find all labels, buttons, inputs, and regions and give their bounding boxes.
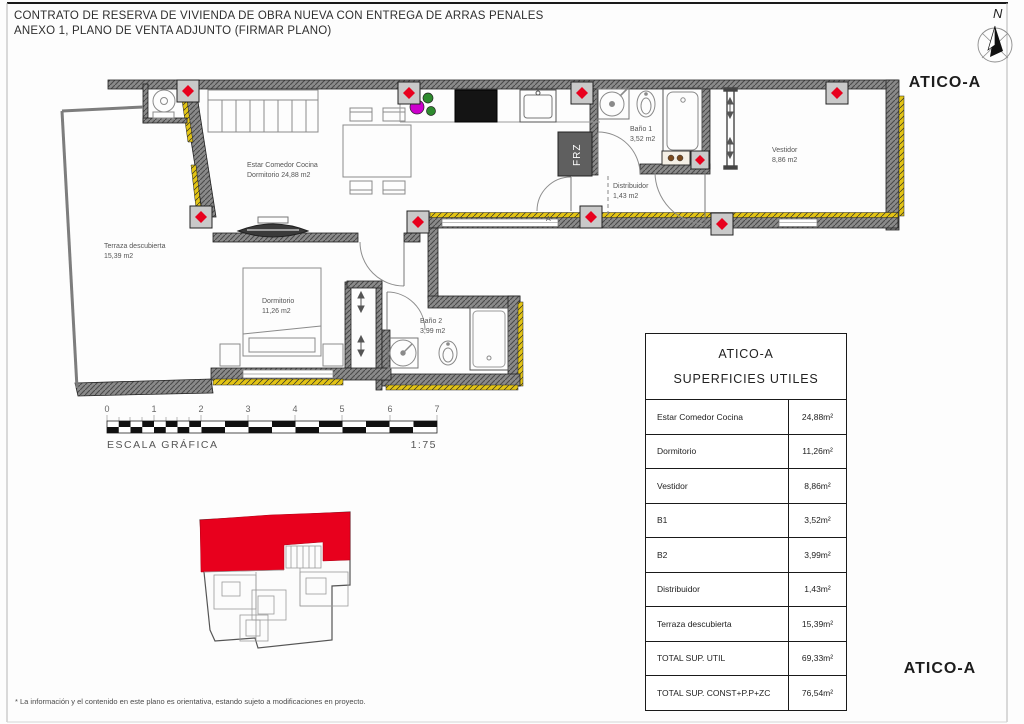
- estar-label: Estar Comedor Cocina: [247, 162, 318, 169]
- bano1-area: 3,52 m2: [630, 136, 655, 143]
- sofa-bench-icon: [208, 90, 318, 132]
- terraza-area: 15,39 m2: [104, 253, 133, 260]
- areas-table-subtitle: SUPERFICIES UTILES: [674, 372, 819, 386]
- bathtub-icon: [663, 88, 702, 154]
- key-plan: [200, 512, 350, 648]
- vestidor-area: 8,86 m2: [772, 157, 797, 164]
- bano2-area: 3,99 m2: [420, 328, 445, 335]
- table-row: TOTAL SUP. UTIL69,33m²: [646, 641, 846, 676]
- row-label: Distribuidor: [646, 573, 788, 607]
- row-label: Dormitorio: [646, 435, 788, 469]
- areas-table: ATICO-A SUPERFICIES UTILES Estar Comedor…: [645, 333, 847, 711]
- distribuidor-area: 1,43 m2: [613, 193, 638, 200]
- unit-name-top: ATICO-A: [880, 74, 1010, 92]
- row-label: Terraza descubierta: [646, 607, 788, 641]
- compass-north-label: N: [993, 6, 1003, 21]
- row-label: Estar Comedor Cocina: [646, 400, 788, 434]
- hob-burner-icon: [423, 93, 433, 103]
- pillar-marker: [826, 82, 848, 104]
- distribuidor-label: Distribuidor: [613, 183, 649, 190]
- row-label: TOTAL SUP. CONST+P.P+ZC: [646, 676, 788, 710]
- table-row: B13,52m²: [646, 503, 846, 538]
- row-value: 69,33m²: [788, 642, 846, 676]
- row-label: B2: [646, 538, 788, 572]
- row-value: 3,52m²: [788, 504, 846, 538]
- bano2-label: Baño 2: [420, 318, 442, 325]
- pillar-marker: [190, 206, 212, 228]
- row-value: 11,26m²: [788, 435, 846, 469]
- freezer-label: FRZ: [572, 144, 583, 166]
- nightstand-icon: [323, 344, 343, 366]
- scale-tick: 5: [339, 404, 344, 414]
- hob-burner-icon: [427, 107, 436, 116]
- scale-tick: 6: [387, 404, 392, 414]
- estar-area: Dormitorio 24,88 m2: [247, 172, 311, 179]
- scale-tick: 1: [151, 404, 156, 414]
- pillar-marker: [711, 213, 733, 235]
- kitchen-sink-icon: [520, 90, 556, 122]
- row-value: 15,39m²: [788, 607, 846, 641]
- bath2-fixtures: [388, 308, 508, 370]
- dormitorio-area: 11,26 m2: [262, 308, 291, 315]
- row-label: Vestidor: [646, 469, 788, 503]
- scale-tick: 3: [245, 404, 250, 414]
- table-row: Vestidor8,86m²: [646, 468, 846, 503]
- washing-machine-icon: [153, 90, 175, 118]
- bano1-label: Baño 1: [630, 126, 652, 133]
- terraza-label: Terraza descubierta: [104, 243, 166, 250]
- pillar-marker: [571, 82, 593, 104]
- pillar-marker: [580, 206, 602, 228]
- row-value: 24,88m²: [788, 400, 846, 434]
- plan-sheet: CONTRATO DE RESERVA DE VIVIENDA DE OBRA …: [0, 0, 1024, 724]
- scale-bar: 0 1 2 3 4 5 6 7: [104, 404, 439, 451]
- pillar-marker: [691, 151, 709, 169]
- areas-table-title: ATICO-A: [718, 347, 773, 361]
- scale-tick: 4: [292, 404, 297, 414]
- scale-caption: ESCALA GRÁFICA: [107, 438, 218, 451]
- unit-name-bottom: ATICO-A: [875, 660, 1005, 678]
- pillar-marker: [398, 82, 420, 104]
- table-row: Estar Comedor Cocina24,88m²: [646, 400, 846, 434]
- shower-tray-icon: [470, 308, 508, 370]
- lounge-sofa-icon: [238, 217, 308, 237]
- dormitorio-label: Dormitorio: [262, 298, 294, 305]
- vanity-cabinet-icon: [662, 151, 690, 165]
- disclaimer-note: * La información y el contenido en este …: [15, 697, 366, 706]
- table-row: B23,99m²: [646, 537, 846, 572]
- pillar-marker: [407, 211, 429, 233]
- area-table-rows: Estar Comedor Cocina24,88m²Dormitorio11,…: [646, 400, 846, 710]
- bidet-icon: [637, 91, 655, 117]
- section-mark: A: [546, 216, 551, 223]
- bathroom-sink-icon: [597, 89, 629, 119]
- kitchen-counter: [400, 89, 600, 122]
- toilet-icon: [439, 341, 457, 365]
- row-value: 3,99m²: [788, 538, 846, 572]
- table-row: Distribuidor1,43m²: [646, 572, 846, 607]
- bed-icon: [220, 268, 343, 366]
- areas-table-header: ATICO-A SUPERFICIES UTILES: [646, 334, 846, 400]
- scale-tick: 0: [104, 404, 109, 414]
- row-label: TOTAL SUP. UTIL: [646, 642, 788, 676]
- nightstand-icon: [220, 344, 240, 366]
- row-value: 76,54m²: [788, 676, 846, 710]
- table-row: Dormitorio11,26m²: [646, 434, 846, 469]
- scale-tick: 2: [198, 404, 203, 414]
- bathroom-sink-icon: [388, 338, 418, 368]
- cooktop-icon: [455, 90, 497, 122]
- row-value: 1,43m²: [788, 573, 846, 607]
- floor-plan-drawing: FRZ A: [0, 0, 1024, 724]
- freezer-box: FRZ: [558, 132, 592, 176]
- table-row: TOTAL SUP. CONST+P.P+ZC76,54m²: [646, 675, 846, 710]
- table-row: Terraza descubierta15,39m²: [646, 606, 846, 641]
- row-label: B1: [646, 504, 788, 538]
- pillar-marker: [177, 80, 199, 102]
- scale-ratio: 1:75: [411, 439, 437, 451]
- row-value: 8,86m²: [788, 469, 846, 503]
- scale-tick: 7: [434, 404, 439, 414]
- vestidor-label: Vestidor: [772, 147, 798, 154]
- dining-table-icon: [343, 108, 411, 194]
